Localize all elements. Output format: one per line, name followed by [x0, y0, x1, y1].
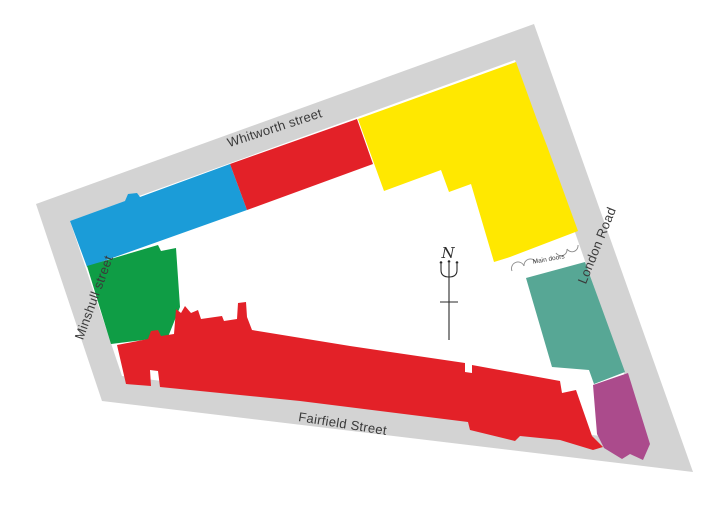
compass-north-label: N [440, 244, 455, 262]
site-plan-map: Main doors N Whitworth street Minshull s… [0, 0, 724, 512]
map-canvas: Main doors N Whitworth street Minshull s… [0, 0, 724, 512]
compass-prong-tip-right [456, 261, 459, 264]
